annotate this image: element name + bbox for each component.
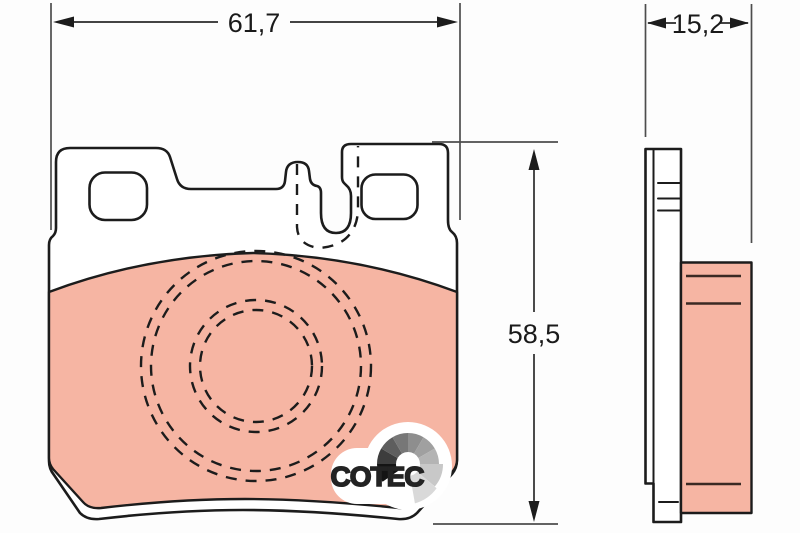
height-dimension-label: 58,5 — [508, 319, 561, 349]
width-arrow-right-icon — [437, 17, 458, 28]
height-arrow-bottom-icon — [529, 501, 540, 522]
mounting-hole-left — [90, 173, 148, 221]
width-dimension-label: 61,7 — [228, 8, 281, 38]
drawing-canvas: COTEC 61,7 58,5 — [0, 0, 800, 533]
thickness-dimension-label: 15,2 — [672, 9, 725, 39]
height-arrow-top-icon — [529, 149, 540, 170]
thickness-arrow-left-icon — [647, 18, 666, 29]
width-arrow-left-icon — [53, 17, 74, 28]
side-backplate-outline — [646, 149, 682, 522]
logo-text: COTEC — [331, 461, 425, 492]
side-friction-material — [681, 263, 752, 514]
mounting-hole-right — [362, 175, 418, 220]
brake-pad-technical-drawing: COTEC 61,7 58,5 — [0, 0, 800, 533]
side-view — [646, 149, 752, 522]
thickness-arrow-right-icon — [730, 18, 749, 29]
